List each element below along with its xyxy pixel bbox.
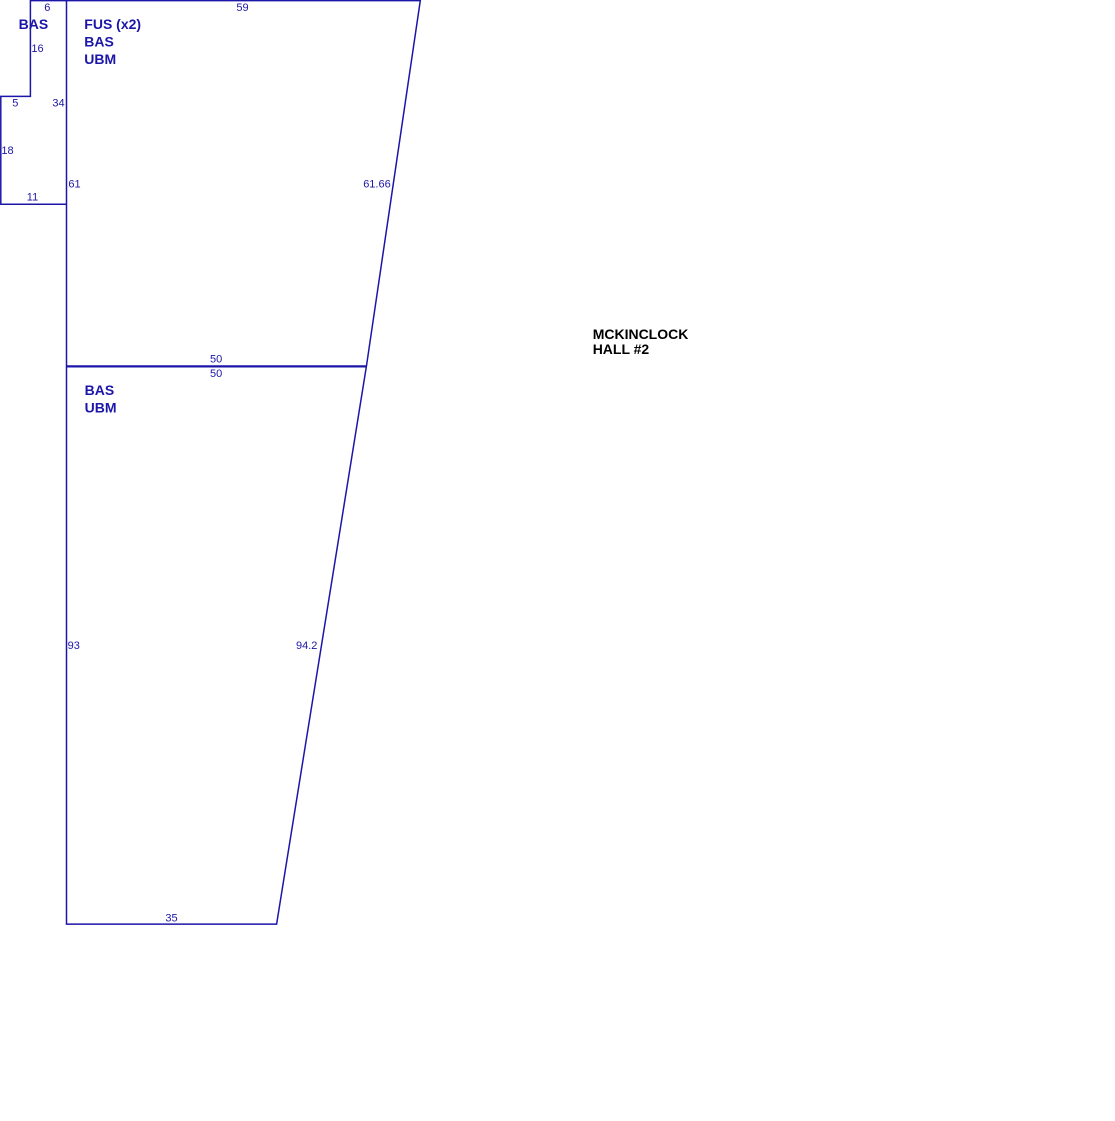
svg-text:HALL #2: HALL #2	[593, 341, 650, 357]
svg-text:FUS (x2): FUS (x2)	[84, 16, 141, 32]
svg-text:BAS: BAS	[19, 16, 49, 32]
svg-text:16: 16	[31, 43, 43, 55]
svg-text:50: 50	[210, 353, 222, 365]
svg-text:BAS: BAS	[84, 33, 114, 49]
svg-text:BAS: BAS	[85, 382, 115, 398]
svg-text:5: 5	[12, 98, 18, 110]
svg-text:50: 50	[210, 368, 222, 380]
svg-text:61: 61	[68, 179, 80, 191]
svg-text:61.66: 61.66	[363, 179, 391, 191]
svg-text:6: 6	[44, 2, 50, 14]
svg-text:UBM: UBM	[84, 51, 116, 67]
svg-text:18: 18	[1, 145, 13, 157]
svg-text:UBM: UBM	[85, 399, 117, 415]
svg-text:35: 35	[165, 912, 177, 924]
svg-text:59: 59	[236, 2, 248, 14]
svg-text:MCKINCLOCK: MCKINCLOCK	[593, 326, 689, 342]
svg-text:34: 34	[52, 97, 64, 109]
svg-text:11: 11	[27, 191, 38, 203]
svg-text:94.2: 94.2	[296, 640, 317, 652]
svg-text:93: 93	[68, 640, 80, 652]
